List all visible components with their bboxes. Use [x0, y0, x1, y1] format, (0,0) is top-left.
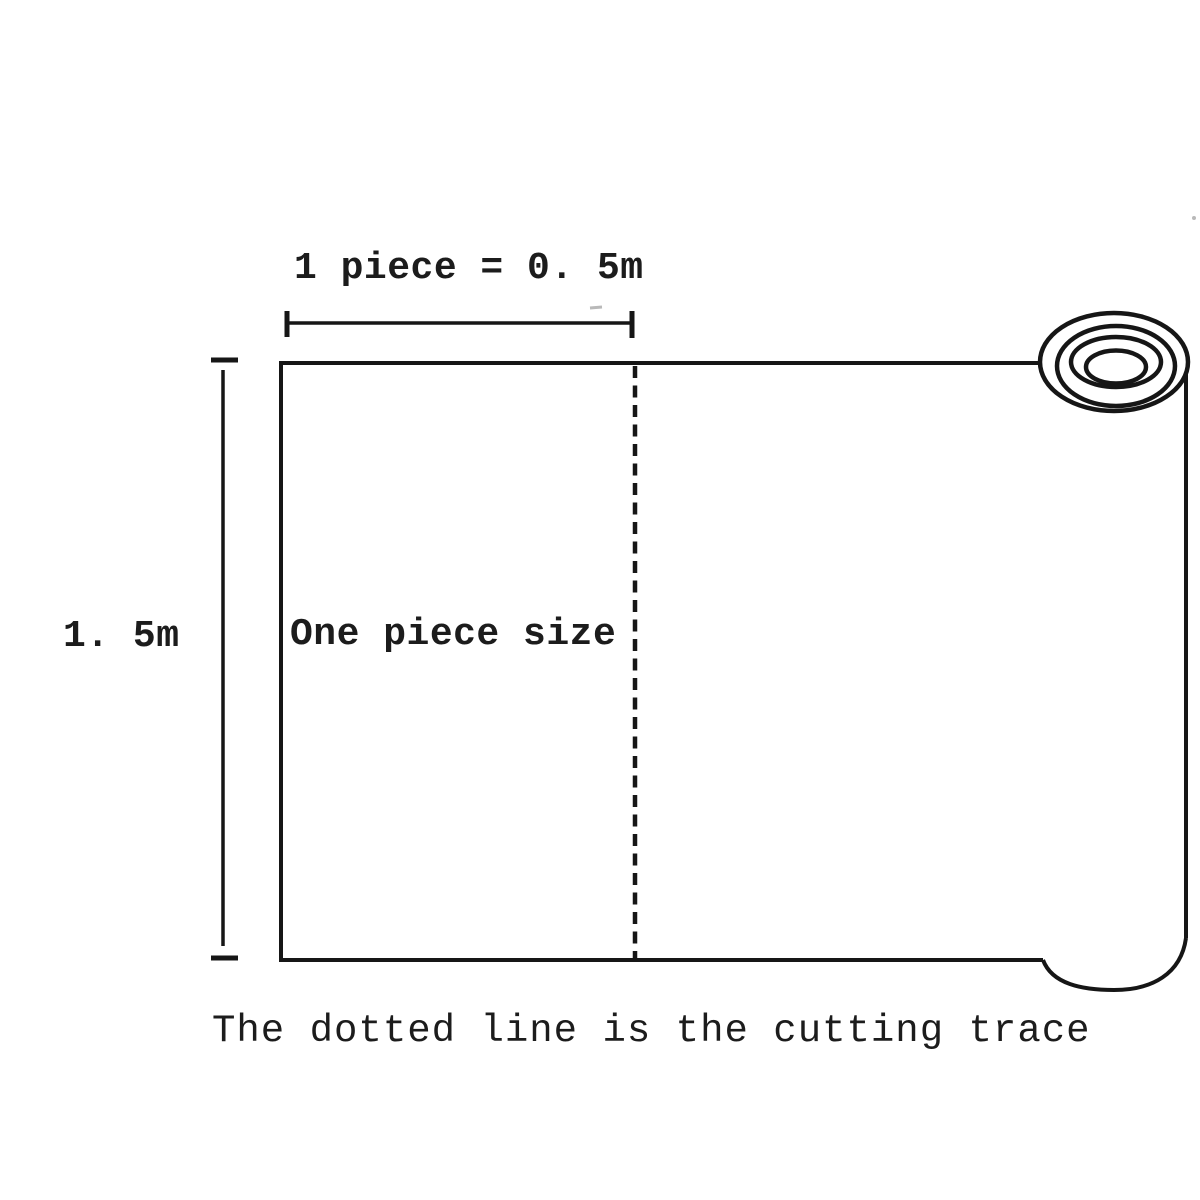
paper-roll-icon	[1040, 313, 1188, 411]
piece-size-label: One piece size	[290, 616, 616, 654]
cutting-trace-caption: The dotted line is the cutting trace	[212, 1012, 1091, 1051]
scan-artifacts	[590, 216, 1196, 308]
roll-core-ellipse	[1086, 351, 1146, 384]
height-dimension-line	[211, 360, 238, 958]
page-canvas: 1 piece = 0. 5m 1. 5m One piece size The…	[0, 0, 1200, 1200]
sheet-outline	[279, 361, 1186, 990]
roll-third-ellipse	[1071, 337, 1161, 387]
width-dimension-line	[286, 311, 632, 338]
height-dimension-label: 1. 5m	[63, 618, 180, 656]
sheet-bottom-curl-curve	[1043, 938, 1186, 990]
width-dimension-label: 1 piece = 0. 5m	[294, 250, 644, 288]
